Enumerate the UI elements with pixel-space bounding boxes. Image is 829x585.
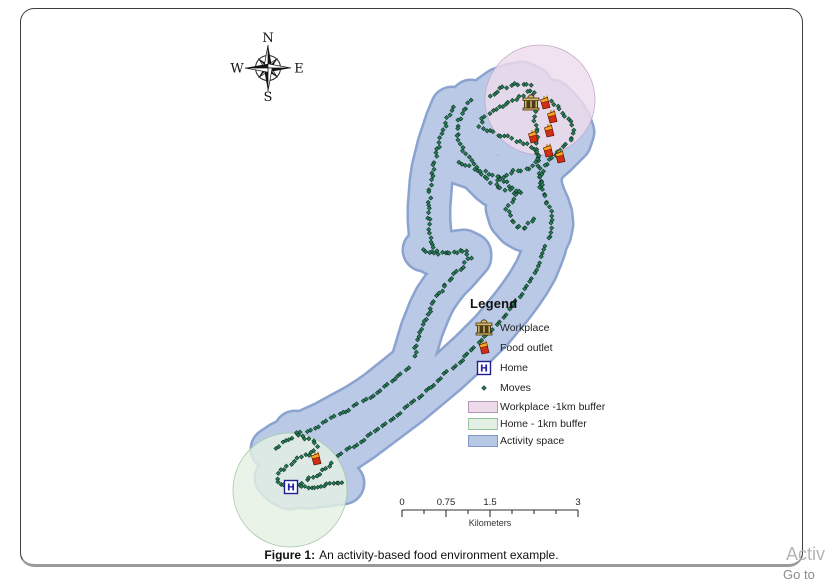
legend-title: Legend — [470, 296, 658, 311]
figure-caption: Figure 1:An activity-based food environm… — [20, 548, 803, 562]
legend-item-label: Home - 1km buffer — [500, 418, 587, 430]
legend-item-label: Home — [500, 362, 528, 374]
scale-tick-label: 0.75 — [437, 497, 456, 508]
legend-item-label: Activity space — [500, 435, 564, 447]
scale-tick-label: 3 — [575, 497, 580, 508]
clipped-go-to-link[interactable]: Go to — [783, 567, 815, 582]
home-buffer-swatch — [468, 418, 498, 430]
map-legend: Legend Workplace Food outlet H Home Move… — [468, 296, 658, 449]
workplace-buffer-swatch — [468, 401, 498, 413]
legend-item-label: Moves — [500, 382, 531, 394]
legend-item-activity-space: Activity space — [468, 432, 658, 449]
scale-tick-label: 0 — [399, 497, 404, 508]
activity-space-swatch — [468, 435, 498, 447]
scale-unit-label: Kilometers — [398, 518, 582, 528]
legend-item-workplace: Workplace — [468, 318, 658, 338]
legend-item-label: Workplace -1km buffer — [500, 401, 605, 413]
figure-caption-label: Figure 1: — [264, 548, 315, 562]
home-icon: H — [478, 362, 491, 375]
workplace-icon — [476, 320, 492, 335]
legend-item-label: Food outlet — [500, 342, 553, 354]
clipped-sidebar-heading: Activ — [786, 544, 825, 565]
scale-tick-label: 1.5 — [483, 497, 496, 508]
legend-item-food-outlet: Food outlet — [468, 338, 658, 358]
svg-text:H: H — [480, 363, 488, 374]
food-outlet-icon — [468, 338, 500, 358]
food-outlet-icon — [480, 341, 490, 355]
workplace-icon — [468, 318, 500, 338]
moves-icon — [468, 378, 500, 398]
legend-item-home: H Home — [468, 358, 658, 378]
figure-border-box — [20, 8, 803, 567]
home-icon: H — [468, 358, 500, 378]
legend-item-workplace-buffer: Workplace -1km buffer — [468, 398, 658, 415]
legend-item-label: Workplace — [500, 322, 549, 334]
legend-item-home-buffer: Home - 1km buffer — [468, 415, 658, 432]
scale-bar: 0 0.75 1.5 3 Kilometers — [398, 497, 582, 529]
moves-icon — [482, 386, 487, 391]
figure-caption-text: An activity-based food environment examp… — [319, 548, 558, 562]
legend-item-moves: Moves — [468, 378, 658, 398]
